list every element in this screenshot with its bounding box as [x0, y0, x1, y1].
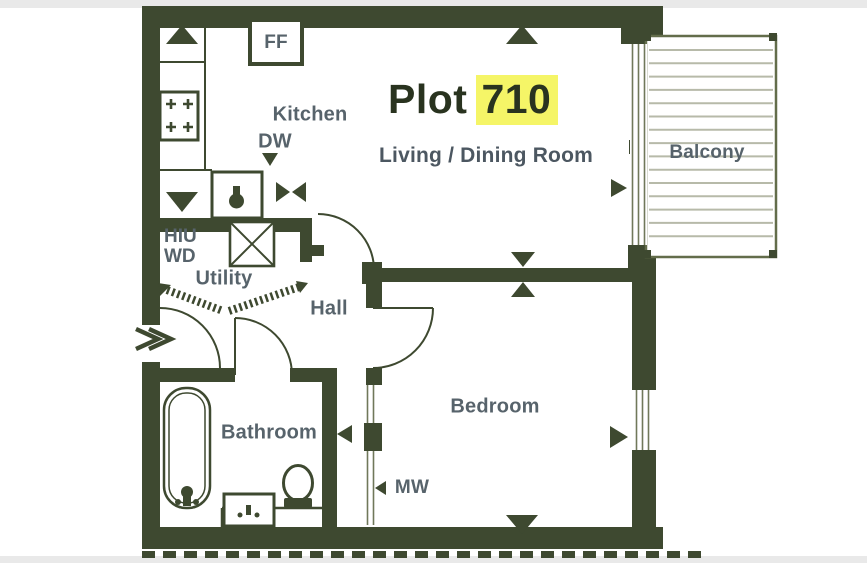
basin-icon [224, 494, 274, 526]
bedroom-window [633, 390, 651, 450]
wall-bowtie-bottom-icon [511, 282, 535, 297]
toilet-icon [284, 466, 313, 509]
hall-door-arc [318, 214, 374, 270]
kitchen-bowtie-right-icon [292, 182, 306, 202]
bedroom-top-wall [382, 268, 656, 282]
bedroom-door-jamb [366, 368, 382, 385]
washer-dryer-icon [230, 222, 274, 266]
top-wall [142, 6, 663, 28]
ff-label: FF [264, 32, 288, 54]
mw-label: MW [395, 477, 429, 499]
window-cap-top [632, 385, 656, 390]
bottom-wall [142, 527, 663, 549]
bathroom-door-arc [235, 318, 292, 375]
bathroom-fixtures [164, 388, 322, 527]
left-wall-lower [142, 362, 160, 527]
balcony-label: Balcony [669, 142, 744, 164]
wd-label: WD [164, 246, 196, 268]
door-swings [160, 214, 433, 375]
sink-icon [212, 172, 262, 218]
page-title: Plot710 [388, 76, 558, 123]
bedroom-label: Bedroom [450, 396, 539, 419]
bedroom-door-pier [366, 268, 382, 308]
dishwasher-marker-icon [262, 153, 278, 166]
bathroom-label: Bathroom [221, 422, 317, 445]
wall-bowtie-top-icon [511, 252, 535, 267]
balcony-door-glazing [630, 44, 647, 245]
entry-arrow-icon [136, 329, 171, 349]
floor-plan: Plot710 Living / Dining Room Kitchen DW … [0, 0, 867, 563]
bottom-dashed-line [142, 551, 701, 558]
bath-icon [164, 388, 210, 508]
bathroom-top-wall-left [158, 368, 235, 382]
wardrobe-block [364, 423, 382, 451]
utility-label: Utility [196, 268, 253, 291]
plot-number-badge: 710 [476, 75, 558, 125]
kitchen-label: Kitchen [273, 104, 348, 127]
bedroom-door-arc [373, 308, 433, 368]
kitchen-down-marker-icon [166, 192, 198, 212]
niche-marker-icon [337, 425, 352, 443]
window-cap-bottom [632, 450, 656, 455]
balcony-door-marker-icon [611, 179, 627, 197]
bedroom-window-marker-icon [610, 426, 628, 448]
left-wall-upper [142, 6, 160, 325]
kitchen-bowtie-left-icon [276, 182, 290, 202]
mw-marker-icon [375, 481, 386, 495]
hiu-label: HIU [164, 226, 197, 248]
plot-title-prefix: Plot [388, 76, 467, 122]
dw-label: DW [258, 131, 292, 154]
living-dining-label: Living / Dining Room [379, 144, 593, 168]
bathroom-right-wall [322, 368, 337, 527]
hall-door-nib [312, 245, 324, 256]
hob-icon [160, 92, 198, 140]
wardrobe-front [368, 385, 374, 525]
hall-label: Hall [310, 298, 347, 321]
hall-door-stub [300, 218, 312, 262]
bedroom-right-wall-lower [632, 455, 656, 527]
